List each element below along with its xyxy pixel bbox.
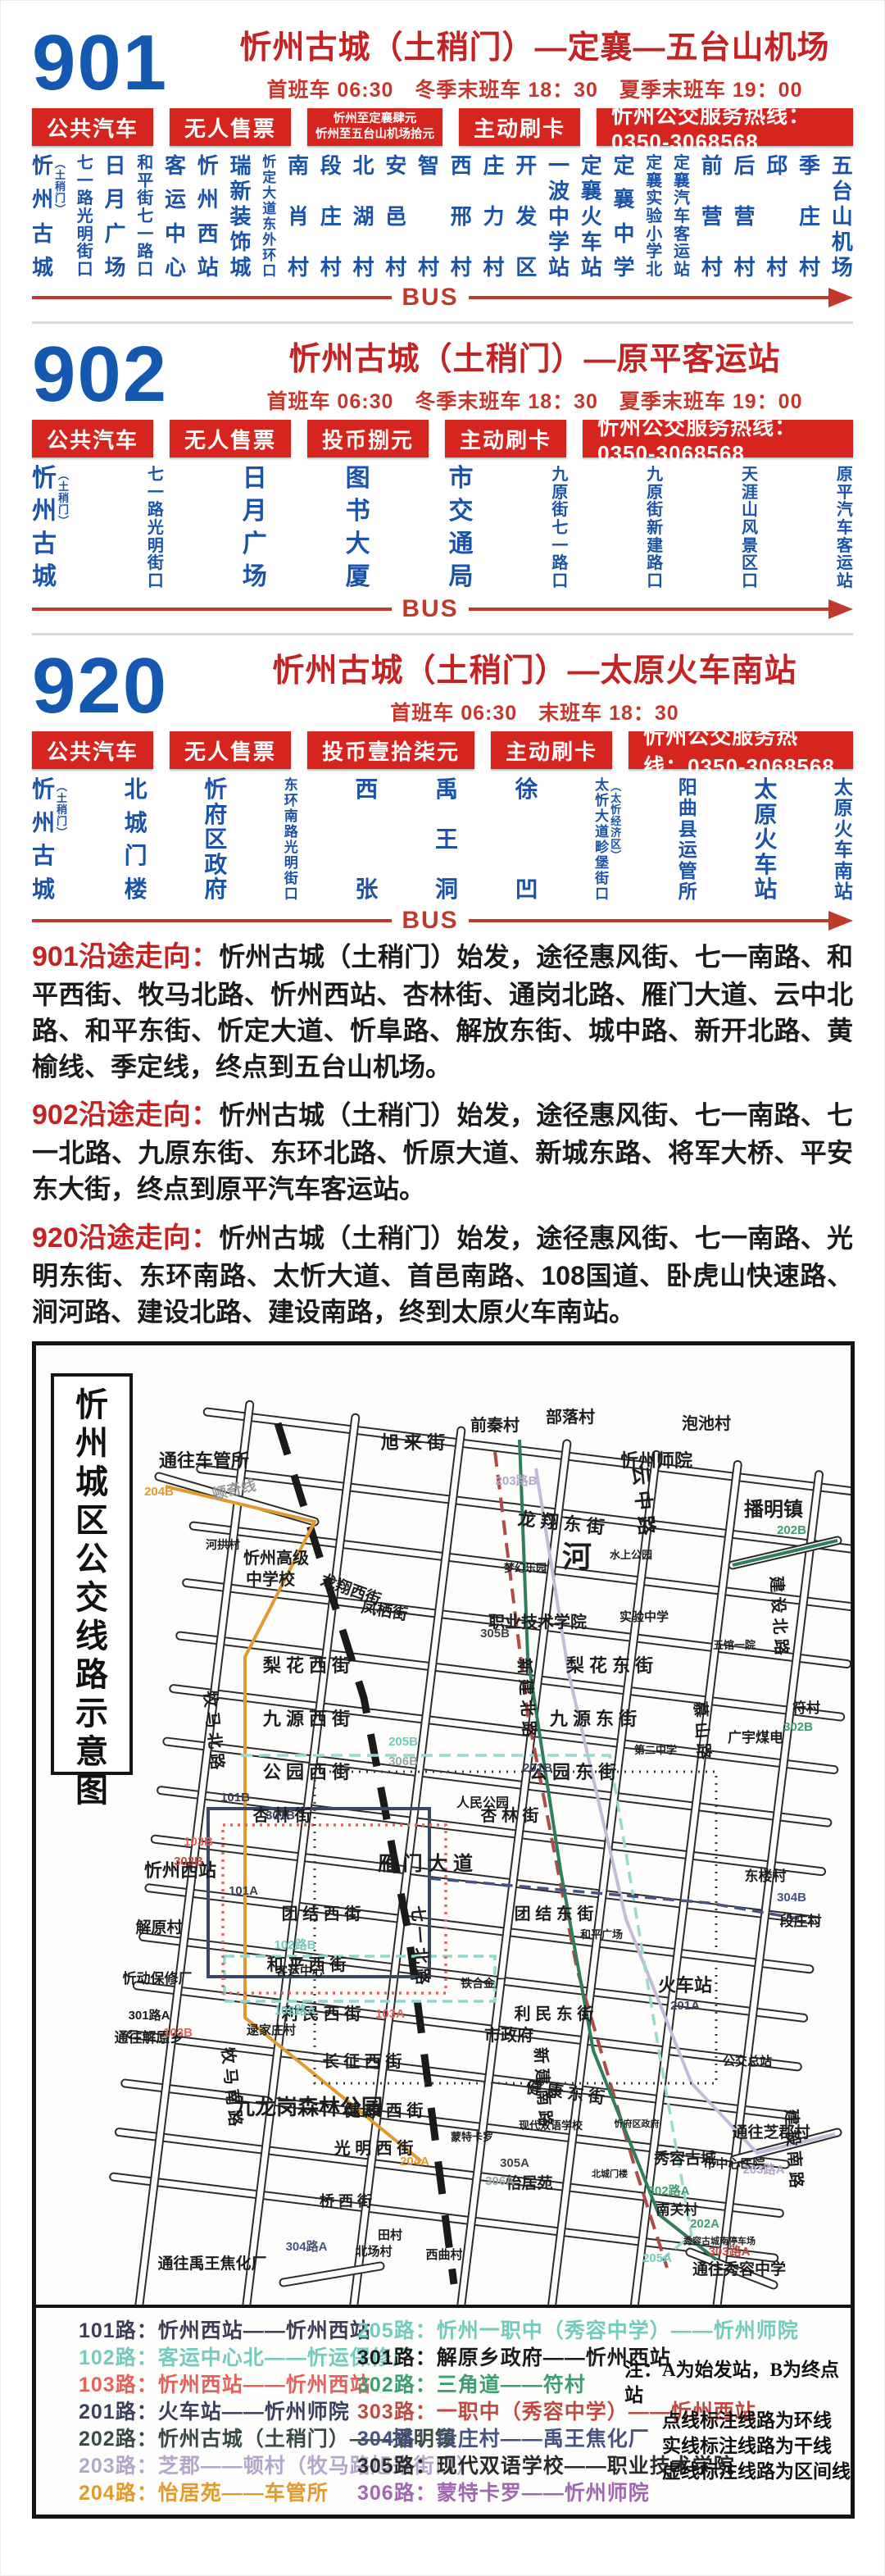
svg-text:205A: 205A bbox=[642, 2251, 672, 2265]
bus-stop: 原平汽车客运站 bbox=[837, 467, 853, 589]
city-bus-map: 忻州城区公交线路示意图 旭 来 街龙 翔 东 街龙翔西街凤栖街云 中 路牧 马 … bbox=[32, 1341, 855, 2519]
svg-text:河: 河 bbox=[562, 1540, 592, 1573]
svg-text:泡池村: 泡池村 bbox=[682, 1413, 731, 1433]
svg-text:交: 交 bbox=[75, 1580, 108, 1616]
badge-row: 公共汽车无人售票投币壹拾柒元主动刷卡忻州公交服务热线：0350-3068568 bbox=[32, 731, 853, 769]
map-legend: 101路：忻州西站——忻州西站102路：客运中心北——忻运保修厂103路：忻州西… bbox=[36, 2305, 851, 2515]
svg-text:忻州高级: 忻州高级 bbox=[243, 1548, 309, 1568]
svg-text:304B: 304B bbox=[777, 1891, 806, 1905]
svg-text:九 源 东 街: 九 源 东 街 bbox=[549, 1709, 637, 1729]
svg-text:火车站: 火车站 bbox=[658, 1975, 712, 1996]
route-badge: 无人售票 bbox=[170, 731, 291, 769]
bus-stop: 前营村 bbox=[701, 155, 723, 278]
svg-text:中学校: 中学校 bbox=[246, 1569, 296, 1589]
svg-text:部落村: 部落村 bbox=[546, 1407, 595, 1427]
badge-row: 公共汽车无人售票投币捌元主动刷卡忻州公交服务热线：0350-3068568 bbox=[32, 420, 853, 457]
svg-text:广宇煤电: 广宇煤电 bbox=[728, 1729, 783, 1745]
bus-stop: 智村 bbox=[418, 155, 439, 278]
arrow-head-icon bbox=[828, 288, 853, 307]
route-badge: 无人售票 bbox=[170, 420, 291, 457]
route-badge: 主动刷卡 bbox=[459, 108, 580, 146]
svg-text:205B: 205B bbox=[388, 1735, 418, 1749]
svg-text:路: 路 bbox=[75, 1657, 109, 1693]
bus-direction-arrow: BUS bbox=[32, 595, 853, 623]
bus-stop: 禹王洞 bbox=[435, 778, 458, 901]
svg-text:203路B: 203路B bbox=[496, 1473, 538, 1488]
bus-direction-arrow: BUS bbox=[32, 284, 853, 312]
legend-note-line: 注：A为始发站，B为终点站 bbox=[624, 2357, 851, 2408]
stops-row: 忻州古城︵土稍门︶七一路光明街口日月广场和平街七一路口客运中心忻州西站瑞新装饰城… bbox=[32, 155, 853, 278]
bus-stop: 季庄村 bbox=[799, 155, 820, 278]
svg-text:忻动保修厂: 忻动保修厂 bbox=[123, 1970, 193, 1987]
svg-text:铁合金厂: 铁合金厂 bbox=[461, 1977, 506, 1990]
bus-stop: 太原火车站 bbox=[754, 778, 777, 901]
svg-text:201B: 201B bbox=[523, 1761, 552, 1775]
bus-stop: 定襄实验小学北 bbox=[646, 155, 662, 278]
svg-text:公交总站: 公交总站 bbox=[723, 2054, 772, 2069]
bus-line-left bbox=[32, 296, 392, 299]
bus-stop: 七一路光明街口 bbox=[147, 467, 164, 589]
svg-text:305A: 305A bbox=[500, 2156, 529, 2170]
bus-stop: 忻州西站 bbox=[197, 155, 219, 278]
svg-text:区: 区 bbox=[75, 1503, 108, 1539]
bus-stop: 忻定大道东外环口 bbox=[262, 155, 276, 278]
svg-text:雁 门 大 道: 雁 门 大 道 bbox=[378, 1852, 473, 1875]
svg-text:长 征 西 街: 长 征 西 街 bbox=[323, 2051, 402, 2071]
legend-route: 205路：忻州一职中（秀容中学）——忻州师院 bbox=[357, 2318, 799, 2345]
stops-row: 忻州古城︵土稍门︶北城门楼忻府区政府东环南路光明街口西张禹王洞徐凹太忻大道畛堡街… bbox=[32, 778, 853, 901]
svg-text:逯家庄村: 逯家庄村 bbox=[247, 2023, 296, 2037]
bus-stop: 市交通局 bbox=[448, 467, 473, 589]
svg-text:梦幻乐园: 梦幻乐园 bbox=[504, 1562, 547, 1574]
bus-stop: 徐凹 bbox=[515, 778, 538, 901]
hotline-badge: 忻州公交服务热线：0350-3068568 bbox=[597, 108, 853, 146]
bus-stop: 日月广场 bbox=[243, 467, 267, 589]
svg-text:303B: 303B bbox=[174, 1855, 203, 1868]
svg-text:忻州师院: 忻州师院 bbox=[620, 1450, 692, 1471]
svg-text:通往芝郡村: 通往芝郡村 bbox=[732, 2123, 810, 2141]
bus-line-left bbox=[32, 608, 392, 611]
bus-label: BUS bbox=[402, 907, 458, 935]
route-section-901: 901 忻州古城（土稍门）—定襄—五台山机场 首班车 06:30 冬季末班车 1… bbox=[32, 22, 853, 312]
svg-text:梨 花 西 街: 梨 花 西 街 bbox=[263, 1655, 350, 1676]
bus-stop: 东环南路光明街口 bbox=[284, 778, 298, 901]
svg-text:204B: 204B bbox=[144, 1485, 174, 1499]
bus-stop: 后营村 bbox=[733, 155, 755, 278]
svg-text:客运中心: 客运中心 bbox=[275, 1964, 324, 1978]
svg-text:忻: 忻 bbox=[75, 1387, 108, 1423]
section-divider bbox=[32, 321, 853, 324]
bus-stop: 西邢村 bbox=[451, 155, 472, 278]
bus-stop: 太忻大道畛堡街口︵太忻经济区︶ bbox=[595, 778, 621, 901]
svg-text:202A: 202A bbox=[690, 2217, 719, 2231]
svg-text:桥 西 街: 桥 西 街 bbox=[320, 2192, 372, 2210]
hotline-badge: 忻州公交服务热线：0350-3068568 bbox=[629, 731, 853, 769]
description-heading: 920沿途走向： bbox=[32, 1222, 219, 1254]
fare-badge: 忻州至定襄肆元 忻州至五台山机场拾元 bbox=[307, 108, 442, 146]
legend-note: 注：A为始发站，B为终点站点线标注线路为环线实线标注线路为干线虚线标注线路为区间… bbox=[624, 2357, 851, 2484]
svg-text:市政府: 市政府 bbox=[484, 2025, 533, 2045]
svg-text:和平广场: 和平广场 bbox=[580, 1928, 623, 1941]
svg-text:人民公园: 人民公园 bbox=[456, 1795, 509, 1810]
svg-text:前秦村: 前秦村 bbox=[470, 1415, 520, 1435]
bus-stop: 定襄火车站 bbox=[581, 155, 602, 278]
route-title: 忻州古城（土稍门）—定襄—五台山机场 bbox=[216, 22, 853, 68]
bus-line-right bbox=[469, 919, 828, 922]
svg-text:九龙岗森林公园: 九龙岗森林公园 bbox=[233, 2095, 383, 2119]
map-canvas: 忻州城区公交线路示意图 旭 来 街龙 翔 东 街龙翔西街凤栖街云 中 路牧 马 … bbox=[36, 1345, 851, 2305]
svg-text:102路B: 102路B bbox=[275, 1937, 316, 1952]
svg-text:201A: 201A bbox=[670, 1999, 700, 2013]
bus-stop: 安邑村 bbox=[385, 155, 406, 278]
svg-text:305B: 305B bbox=[480, 1627, 510, 1641]
bus-stop: 定襄中学 bbox=[613, 155, 634, 278]
svg-text:306A: 306A bbox=[485, 2174, 515, 2188]
bus-stop: 南肖村 bbox=[288, 155, 309, 278]
svg-text:旭 来 街: 旭 来 街 bbox=[380, 1432, 445, 1453]
bus-routes-poster: 901 忻州古城（土稍门）—定襄—五台山机场 首班车 06:30 冬季末班车 1… bbox=[0, 0, 885, 2576]
svg-text:南关村: 南关村 bbox=[656, 2201, 698, 2218]
bus-stop: 北城门楼 bbox=[125, 778, 147, 901]
route-number: 920 bbox=[32, 649, 216, 724]
svg-text:梨 花 东 街: 梨 花 东 街 bbox=[566, 1655, 653, 1676]
bus-stop: 阳曲县运管所 bbox=[678, 778, 697, 901]
bus-line-right bbox=[469, 608, 828, 611]
svg-text:东楼村: 东楼村 bbox=[745, 1868, 787, 1884]
bus-direction-arrow: BUS bbox=[32, 907, 853, 935]
bus-stop: 日月广场 bbox=[105, 155, 126, 278]
svg-text:解原村: 解原村 bbox=[135, 1918, 182, 1937]
route-badge: 投币捌元 bbox=[307, 420, 429, 457]
route-badge: 无人售票 bbox=[170, 108, 291, 146]
route-badge: 公共汽车 bbox=[32, 420, 153, 457]
route-badge: 公共汽车 bbox=[32, 108, 153, 146]
svg-text:忻府区政府: 忻府区政府 bbox=[615, 2118, 660, 2129]
svg-text:利 民 东 街: 利 民 东 街 bbox=[515, 2004, 594, 2023]
svg-text:段庄村: 段庄村 bbox=[780, 1913, 822, 1929]
description-heading: 902沿途走向： bbox=[32, 1099, 219, 1131]
bus-label: BUS bbox=[402, 284, 458, 312]
route-section-902: 902 忻州古城（土稍门）—原平客运站 首班车 06:30 冬季末班车 18：3… bbox=[32, 334, 853, 623]
svg-text:线: 线 bbox=[75, 1618, 108, 1654]
svg-text:101A: 101A bbox=[229, 1884, 258, 1898]
svg-text:播明镇: 播明镇 bbox=[744, 1499, 803, 1521]
svg-text:通往秀容中学: 通往秀容中学 bbox=[692, 2260, 786, 2278]
svg-text:103B: 103B bbox=[184, 1835, 213, 1849]
stops-row: 忻州古城︵土稍门︶七一路光明街口日月广场图书大厦市交通局九原街七一路口九原街新建… bbox=[32, 467, 853, 589]
svg-text:公: 公 bbox=[75, 1541, 108, 1577]
svg-text:五馆一院: 五馆一院 bbox=[713, 1639, 756, 1651]
svg-text:示: 示 bbox=[75, 1695, 108, 1732]
bus-stop: 忻州古城︵土稍门︶ bbox=[32, 778, 67, 901]
svg-text:九 源 西 街: 九 源 西 街 bbox=[262, 1709, 350, 1729]
route-901-description: 901沿途走向：忻州古城（土稍门）始发，途径惠风街、七一南路、和平西街、牧马北路… bbox=[32, 938, 853, 1085]
route-header: 902 忻州古城（土稍门）—原平客运站 首班车 06:30 冬季末班车 18：3… bbox=[32, 334, 853, 412]
svg-text:306B: 306B bbox=[388, 1755, 418, 1768]
svg-text:303路A: 303路A bbox=[709, 2244, 751, 2259]
arrow-head-icon bbox=[828, 911, 853, 931]
bus-stop: 北湖村 bbox=[352, 155, 374, 278]
bus-stop: 和平街七一路口 bbox=[137, 155, 153, 278]
bus-stop: 七一路光明街口 bbox=[77, 155, 93, 278]
svg-text:河拱村: 河拱村 bbox=[206, 1538, 240, 1551]
bus-stop: 邱村 bbox=[766, 155, 787, 278]
svg-text:301路A: 301路A bbox=[129, 2008, 170, 2023]
svg-text:水上公园: 水上公园 bbox=[610, 1549, 652, 1561]
arrow-head-icon bbox=[828, 599, 853, 619]
svg-text:符村: 符村 bbox=[792, 1700, 820, 1716]
bus-stop: 忻州古城︵土稍门︶ bbox=[32, 155, 66, 278]
svg-text:202B: 202B bbox=[777, 1523, 806, 1537]
badge-row: 公共汽车无人售票忻州至定襄肆元 忻州至五台山机场拾元主动刷卡忻州公交服务热线：0… bbox=[32, 108, 853, 146]
svg-text:101B: 101B bbox=[220, 1791, 250, 1805]
bus-stop: 九原街新建路口 bbox=[647, 467, 663, 589]
svg-text:北城门楼: 北城门楼 bbox=[592, 2168, 628, 2179]
bus-stop: 一波中学站 bbox=[548, 155, 570, 278]
bus-stop: 图书大厦 bbox=[346, 467, 370, 589]
svg-text:秀容古城: 秀容古城 bbox=[653, 2149, 716, 2168]
svg-text:通往车管所: 通往车管所 bbox=[159, 1450, 249, 1471]
svg-text:西曲村: 西曲村 bbox=[425, 2247, 462, 2262]
svg-text:102路A: 102路A bbox=[275, 2003, 316, 2018]
bus-stop: 太原火车南站 bbox=[834, 778, 853, 901]
bus-stop: 瑞新装饰城 bbox=[229, 155, 251, 278]
svg-text:103A: 103A bbox=[375, 2007, 405, 2021]
svg-text:现代双语学校: 现代双语学校 bbox=[519, 2119, 583, 2132]
bus-stop: 客运中心 bbox=[165, 155, 186, 278]
svg-text:北场村: 北场村 bbox=[355, 2244, 392, 2259]
route-descriptions: 901沿途走向：忻州古城（土稍门）始发，途径惠风街、七一南路、和平西街、牧马北路… bbox=[32, 938, 853, 1330]
route-badge: 主动刷卡 bbox=[491, 731, 612, 769]
bus-stop: 庄力村 bbox=[483, 155, 504, 278]
description-heading: 901沿途走向： bbox=[32, 941, 219, 972]
bus-stop: 忻州古城︵土稍门︶ bbox=[32, 467, 69, 589]
svg-text:团 结 东 街: 团 结 东 街 bbox=[515, 1904, 594, 1923]
route-902-description: 902沿途走向：忻州古城（土稍门）始发，途径惠风街、七一南路、七一北路、九原东街… bbox=[32, 1096, 853, 1207]
bus-stop: 段庄村 bbox=[320, 155, 342, 278]
svg-text:实验中学: 实验中学 bbox=[619, 1609, 669, 1624]
route-title: 忻州古城（土稍门）—原平客运站 bbox=[216, 334, 853, 380]
bus-stop: 忻府区政府 bbox=[204, 778, 227, 901]
svg-text:204A: 204A bbox=[400, 2155, 429, 2169]
section-divider bbox=[32, 633, 853, 635]
route-badge: 投币壹拾柒元 bbox=[307, 731, 474, 769]
route-title: 忻州古城（土稍门）—太原火车南站 bbox=[216, 645, 853, 691]
svg-text:州: 州 bbox=[75, 1426, 108, 1462]
hotline-badge: 忻州公交服务热线：0350-3068568 bbox=[583, 420, 853, 457]
svg-text:304路A: 304路A bbox=[286, 2239, 328, 2254]
svg-text:通往禹王焦化厂: 通往禹王焦化厂 bbox=[157, 2254, 266, 2273]
route-header: 920 忻州古城（土稍门）—太原火车南站 首班车 06:30 末班车 18：30 bbox=[32, 645, 853, 724]
route-section-920: 920 忻州古城（土稍门）—太原火车南站 首班车 06:30 末班车 18：30… bbox=[32, 645, 853, 935]
map-title: 忻州城区公交线路示意图 bbox=[52, 1375, 131, 1809]
bus-label: BUS bbox=[402, 595, 458, 623]
route-number: 901 bbox=[32, 25, 216, 101]
bus-stop: 西张 bbox=[355, 778, 378, 901]
svg-text:203路A: 203路A bbox=[743, 2162, 785, 2177]
legend-note-line: 虚线标注线路为区间线 bbox=[662, 2459, 851, 2484]
bus-stop: 九原街七一路口 bbox=[551, 467, 568, 589]
svg-text:蒙特卡罗: 蒙特卡罗 bbox=[451, 2131, 493, 2143]
svg-text:301B: 301B bbox=[265, 1809, 295, 1823]
bus-stop: 开发区 bbox=[515, 155, 537, 278]
svg-text:城: 城 bbox=[75, 1464, 108, 1500]
svg-text:图: 图 bbox=[75, 1773, 108, 1809]
svg-text:公 园 西 街: 公 园 西 街 bbox=[263, 1762, 350, 1782]
route-number: 902 bbox=[32, 337, 216, 412]
svg-text:第二中学: 第二中学 bbox=[634, 1744, 677, 1756]
bus-line-left bbox=[32, 919, 392, 922]
route-badge: 主动刷卡 bbox=[445, 420, 566, 457]
bus-stop: 五台山机场 bbox=[832, 155, 853, 278]
legend-note-line: 点线标注线路为环线 bbox=[662, 2408, 851, 2433]
svg-text:田村: 田村 bbox=[378, 2228, 402, 2242]
bus-line-right bbox=[469, 296, 828, 299]
route-badge: 公共汽车 bbox=[32, 731, 153, 769]
svg-text:意: 意 bbox=[75, 1734, 108, 1770]
svg-text:团 结 西 街: 团 结 西 街 bbox=[282, 1904, 361, 1923]
svg-text:302B: 302B bbox=[783, 1720, 813, 1734]
svg-text:302路A: 302路A bbox=[648, 2183, 690, 2198]
route-920-description: 920沿途走向：忻州古城（土稍门）始发，途径惠风街、七一南路、光明东街、东环南路… bbox=[32, 1219, 853, 1330]
bus-stop: 天涯山风景区口 bbox=[742, 467, 758, 589]
bus-stop: 定襄汽车客运站 bbox=[674, 155, 690, 278]
svg-text:103B: 103B bbox=[163, 2026, 193, 2040]
legend-note-line: 实线标注线路为干线 bbox=[662, 2433, 851, 2459]
route-header: 901 忻州古城（土稍门）—定襄—五台山机场 首班车 06:30 冬季末班车 1… bbox=[32, 22, 853, 101]
